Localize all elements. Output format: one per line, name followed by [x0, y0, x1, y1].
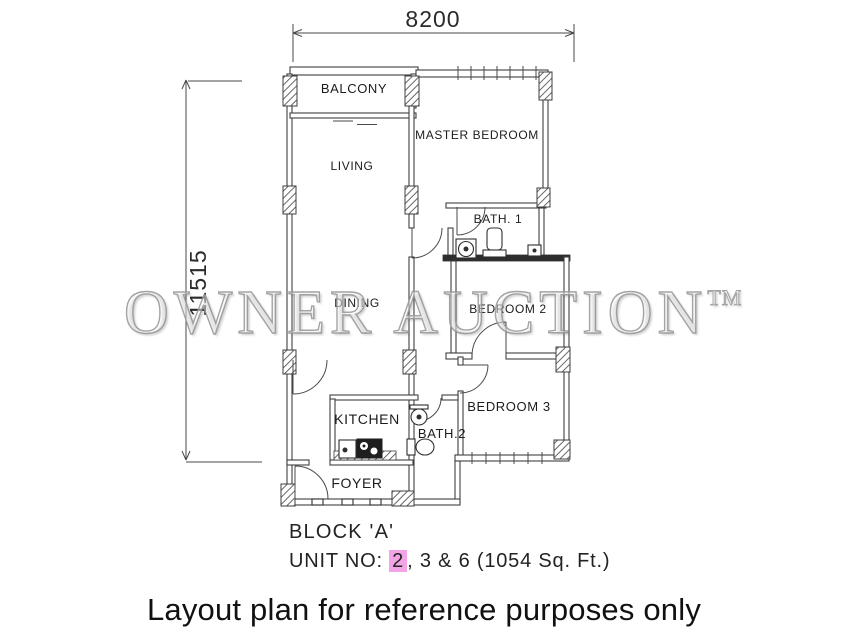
room-label-kitchen: KITCHEN: [334, 411, 400, 427]
unit-rest: , 3 & 6 (1054 Sq. Ft.): [407, 550, 610, 572]
bath1-toilet-icon: [483, 228, 506, 257]
unit-highlighted-number: 2: [389, 550, 407, 572]
window-foyer: [312, 499, 381, 505]
watermark-tm: TM: [707, 285, 742, 310]
dimension-width-label: 8200: [405, 6, 460, 32]
bath1-sink-icon: [456, 239, 476, 258]
door-hall: [293, 360, 327, 394]
unit-number-line: UNIT NO: 2, 3 & 6 (1054 Sq. Ft.): [289, 550, 610, 573]
kitchen-stove-icon: [357, 439, 382, 458]
door-bedroom-3: [460, 365, 488, 393]
dimension-height: 11515: [182, 80, 262, 462]
room-label-bath-2: BATH.2: [418, 426, 466, 441]
kitchen-sink-icon: [339, 440, 356, 458]
dimension-width: 8200: [293, 6, 574, 62]
room-label-living: LIVING: [331, 159, 374, 173]
door-master-hall: [412, 228, 442, 258]
caption: Layout plan for reference purposes only: [0, 592, 848, 628]
unit-prefix: UNIT NO:: [289, 550, 389, 572]
room-label-master-bedroom: MASTER BEDROOM: [415, 128, 539, 142]
watermark-text: OWNER AUCTION: [124, 279, 707, 347]
room-label-bath-1: BATH. 1: [474, 212, 523, 226]
room-label-bedroom-3: BEDROOM 3: [467, 399, 550, 414]
block-label: BLOCK 'A': [289, 521, 394, 544]
sliding-door-balcony: [333, 121, 377, 125]
door-entrance: [295, 466, 328, 499]
watermark: OWNER AUCTIONTM: [124, 278, 742, 349]
room-label-foyer: FOYER: [331, 475, 382, 491]
room-label-balcony: BALCONY: [321, 81, 387, 96]
floor-plan-page: 8200 11515: [0, 0, 848, 636]
bath2-toilet-icon: [407, 439, 434, 455]
bath2-sink-icon: [410, 405, 428, 425]
bath1-cistern-icon: [528, 245, 541, 256]
